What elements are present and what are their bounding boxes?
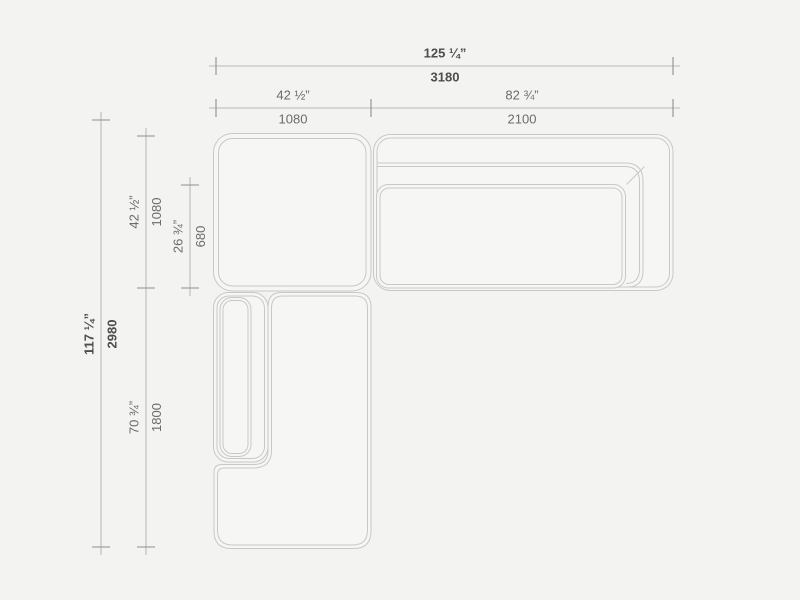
dimension-overall-width: 125 ¼” 3180 xyxy=(209,46,680,85)
corner-module xyxy=(214,134,372,292)
drawing-canvas: 125 ¼” 3180 42 ½” 1080 82 ¾” 2100 117 ¼”… xyxy=(0,0,800,600)
dim-label-mm: 2100 xyxy=(508,112,537,127)
dim-label-mm: 1080 xyxy=(279,112,308,127)
dim-label-inches: 42 ½” xyxy=(127,195,142,228)
sofa-dimension-drawing: 125 ¼” 3180 42 ½” 1080 82 ¾” 2100 117 ¼”… xyxy=(0,0,800,600)
chaise-armrest-outer-outline xyxy=(214,293,269,463)
right-sofa-module xyxy=(374,135,674,291)
dimension-module-widths: 42 ½” 1080 82 ¾” 2100 xyxy=(209,88,680,127)
dim-label-inches: 26 ¾” xyxy=(171,220,186,253)
dim-label-mm: 2980 xyxy=(105,320,120,349)
dim-label-inches: 42 ½” xyxy=(276,88,309,103)
corner-module-outer-outline xyxy=(214,134,372,292)
dim-label-mm: 3180 xyxy=(431,70,460,85)
dim-label-inches: 82 ¾” xyxy=(505,88,538,103)
dim-label-mm: 1800 xyxy=(149,403,164,432)
dim-label-inches: 70 ¾” xyxy=(127,401,142,434)
dim-label-mm: 680 xyxy=(193,226,208,248)
right-module-seat-cushion-outer xyxy=(377,185,626,289)
dimension-overall-depth: 117 ¼” 2980 xyxy=(82,112,120,555)
dim-label-inches: 117 ¼” xyxy=(82,313,97,355)
dim-label-mm: 1080 xyxy=(149,198,164,227)
dimension-seat-depth: 26 ¾” 680 xyxy=(171,177,209,296)
chaise-module xyxy=(214,293,372,549)
dimension-corner-depth-and-chaise: 42 ½” 1080 70 ¾” 1800 xyxy=(127,128,165,555)
dim-label-inches: 125 ¼” xyxy=(424,46,467,61)
